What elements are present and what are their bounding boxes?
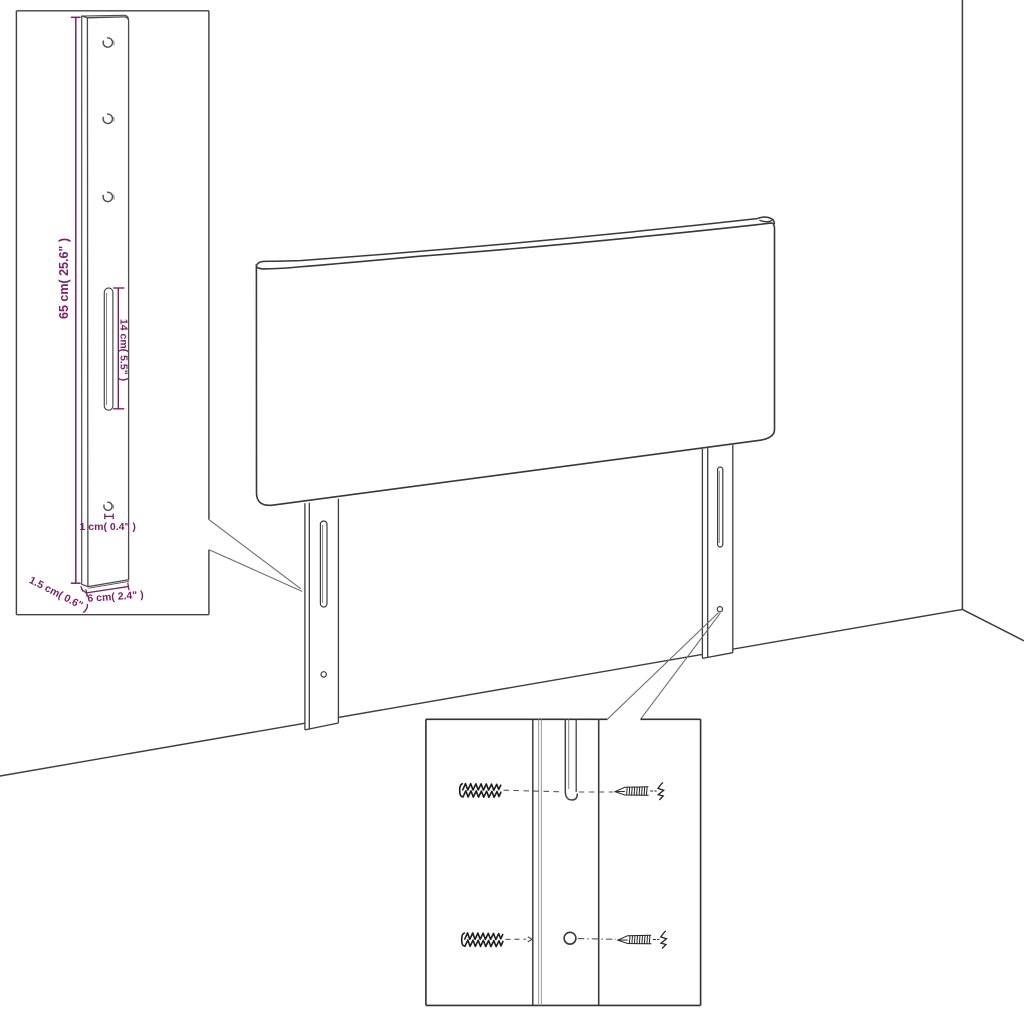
svg-text:14 cm( 5.5" ): 14 cm( 5.5" ) <box>117 319 129 381</box>
svg-text:65 cm( 25.6" ): 65 cm( 25.6" ) <box>57 238 71 319</box>
svg-text:1 cm( 0.4" ): 1 cm( 0.4" ) <box>80 521 136 533</box>
